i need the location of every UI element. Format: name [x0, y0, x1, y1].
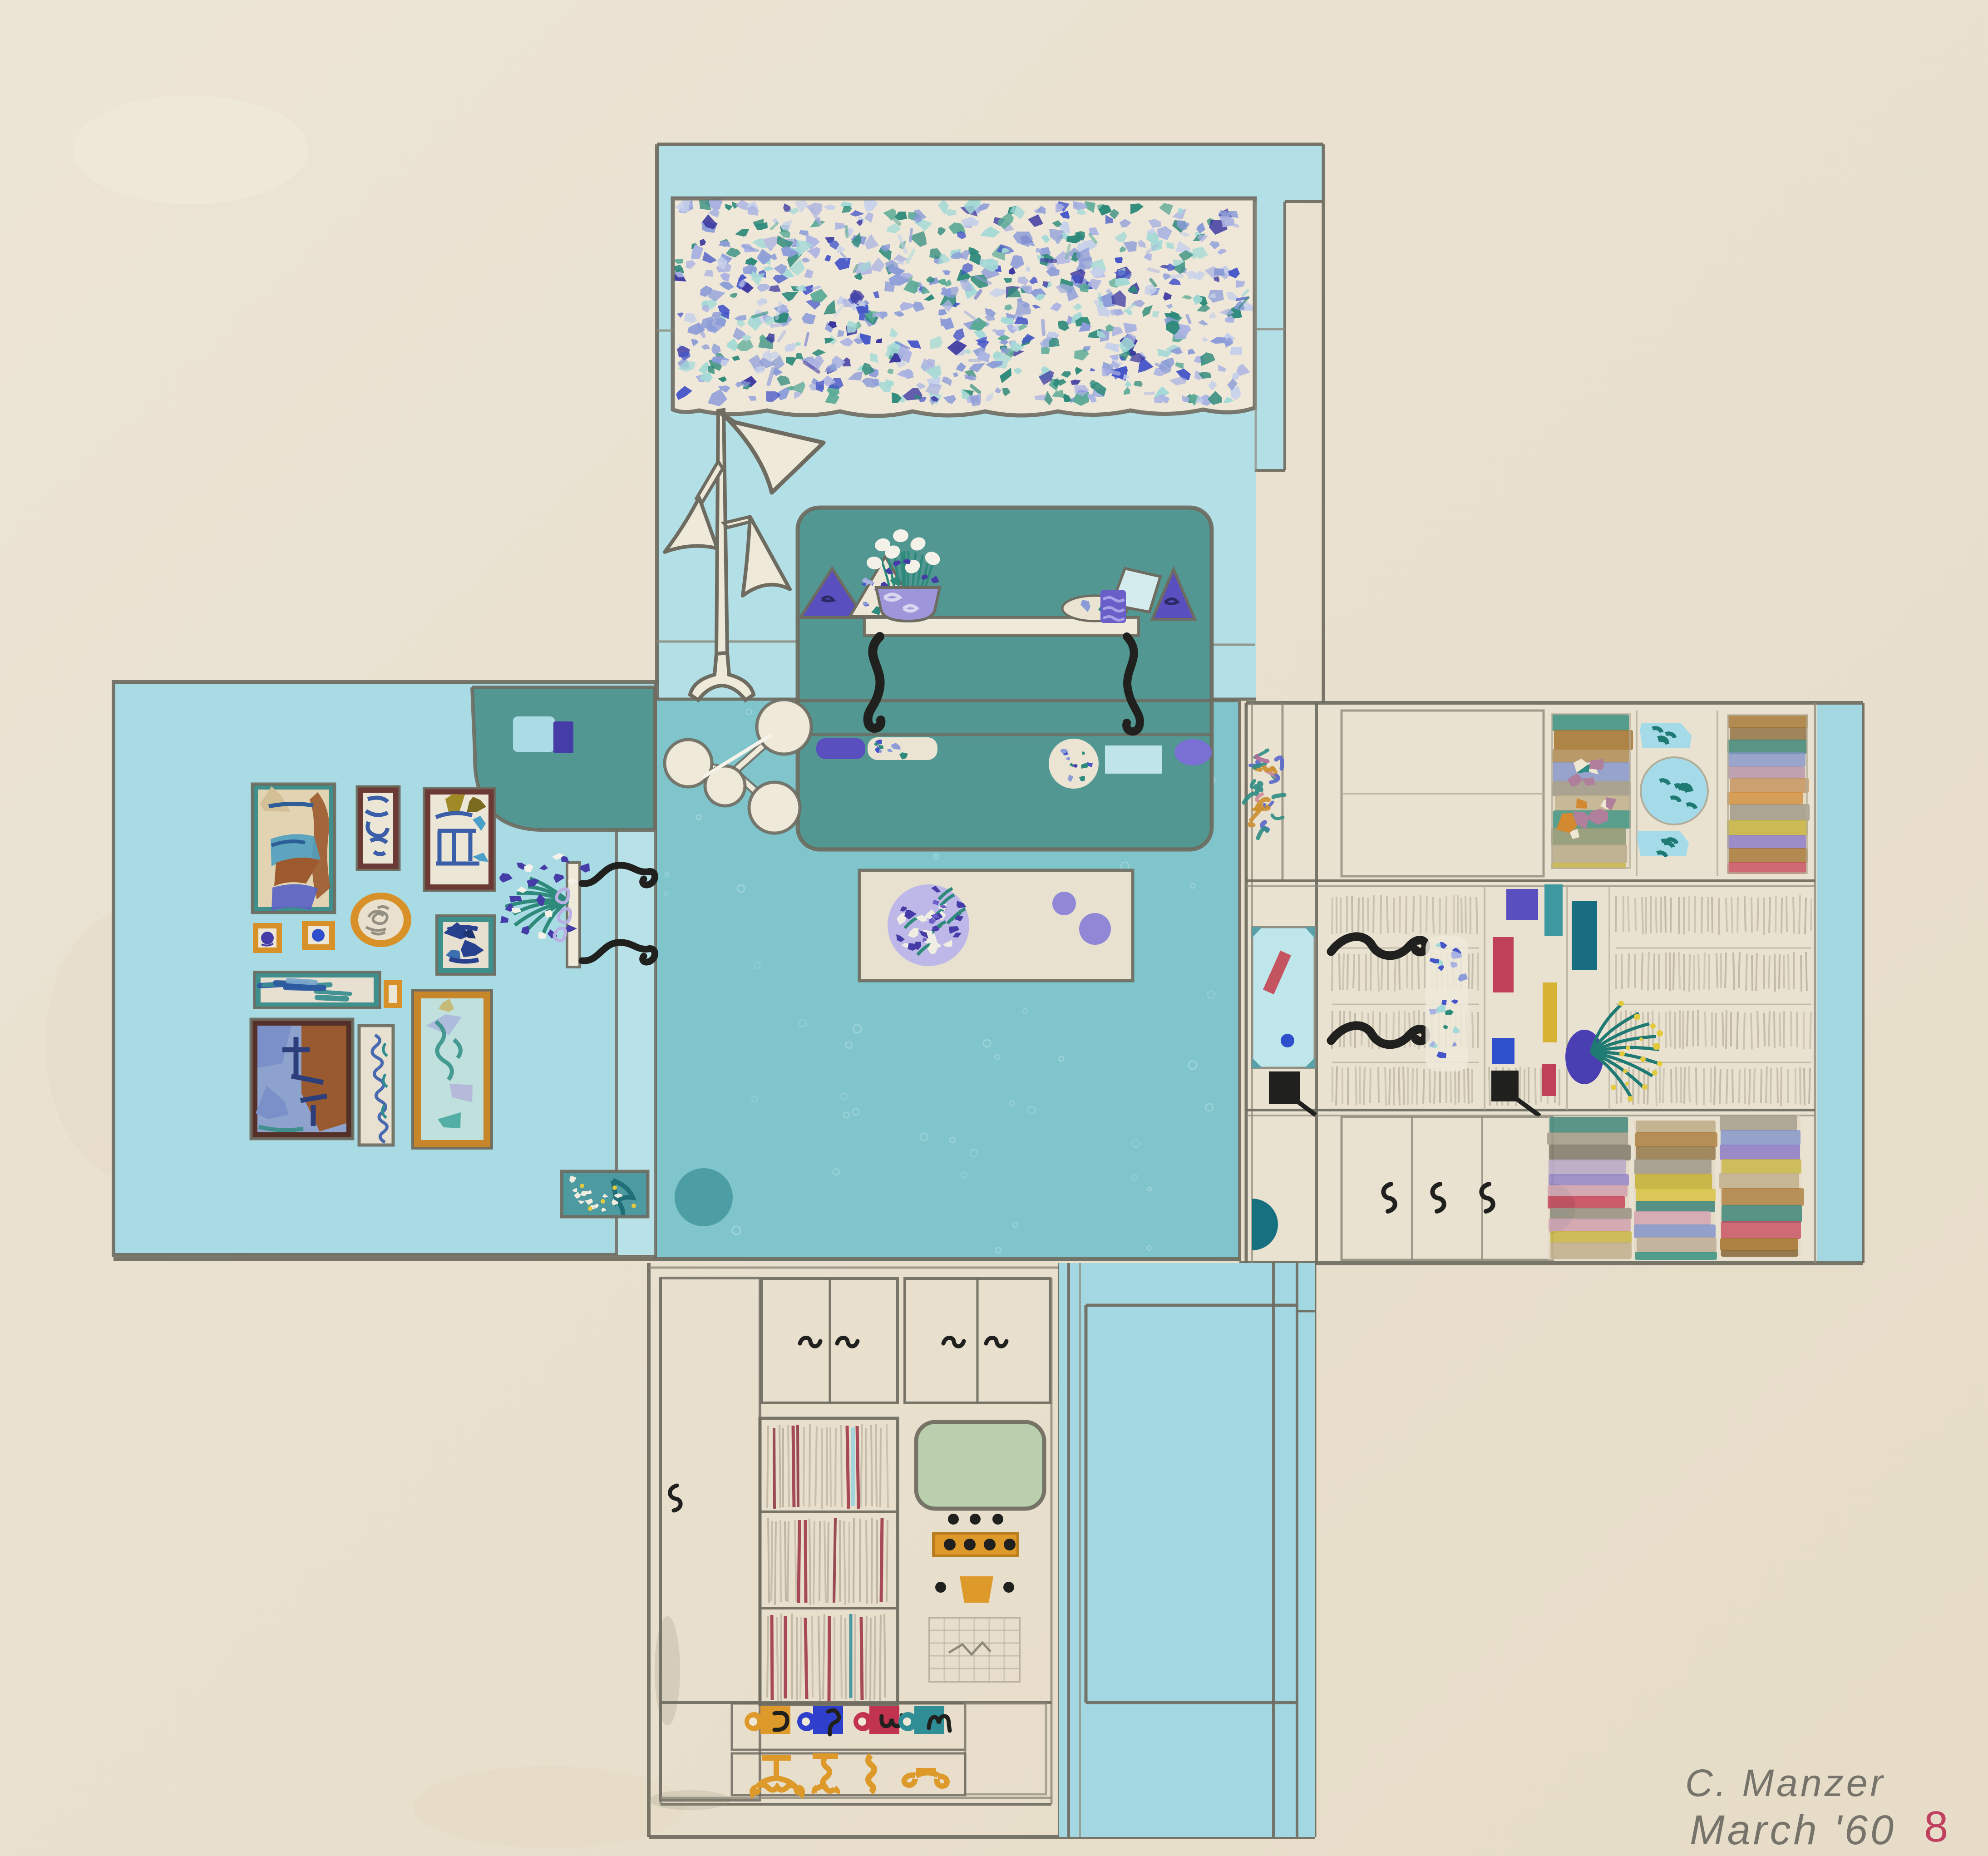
svg-text:C. Manzer: C. Manzer	[1685, 1762, 1885, 1804]
svg-text:8: 8	[1924, 1802, 1948, 1851]
svg-text:March '60: March '60	[1690, 1807, 1896, 1853]
